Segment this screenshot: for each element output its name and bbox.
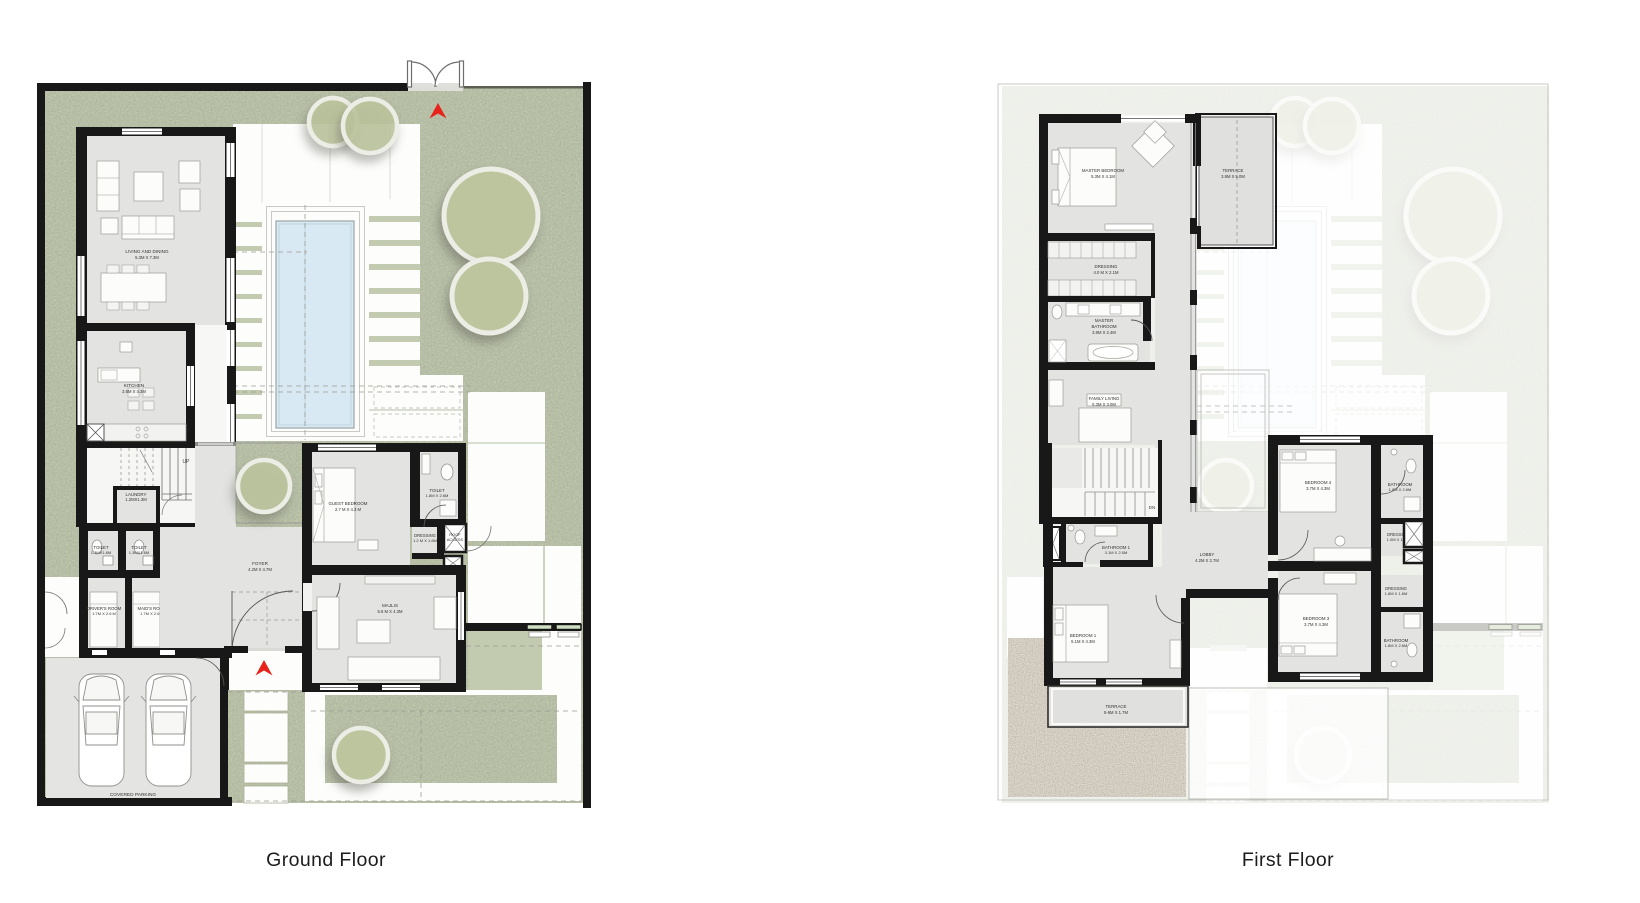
svg-text:4.0 M X 2.1M: 4.0 M X 2.1M — [1094, 270, 1119, 275]
svg-text:1.3MX1.6M: 1.3MX1.6M — [129, 550, 149, 555]
svg-text:4.2M X 2.7M: 4.2M X 2.7M — [1195, 558, 1219, 563]
svg-text:LOBBY: LOBBY — [1200, 552, 1215, 557]
svg-text:LIVING AND DINING: LIVING AND DINING — [125, 249, 169, 254]
svg-text:5.3M X 3.0M: 5.3M X 3.0M — [1092, 402, 1116, 407]
svg-text:1.2 M X 1.6M: 1.2 M X 1.6M — [413, 538, 437, 543]
svg-text:UP: UP — [183, 459, 191, 465]
svg-text:3.7M X 4.3M: 3.7M X 4.3M — [1304, 622, 1328, 627]
svg-text:MAJLIS: MAJLIS — [382, 603, 398, 608]
svg-text:4.2M X 4.7M: 4.2M X 4.7M — [248, 567, 272, 572]
svg-text:3.1M X 2.0M: 3.1M X 2.0M — [1105, 550, 1128, 555]
svg-text:1.3MX1.6M: 1.3MX1.6M — [91, 550, 111, 555]
svg-text:DRESSING: DRESSING — [1095, 264, 1119, 269]
svg-text:Ground Floor: Ground Floor — [266, 849, 386, 871]
svg-text:5.3M X 4.1M: 5.3M X 4.1M — [1091, 174, 1115, 179]
svg-text:5-6M X 1.7M: 5-6M X 1.7M — [1104, 710, 1128, 715]
svg-text:MASTER: MASTER — [1095, 318, 1113, 323]
svg-text:COVERED PARKING: COVERED PARKING — [110, 792, 157, 798]
svg-text:FAMILY LIVING: FAMILY LIVING — [1089, 396, 1120, 401]
svg-text:ACCESS: ACCESS — [447, 537, 464, 542]
svg-text:FOYER: FOYER — [252, 561, 269, 566]
svg-text:1.8M X 1.6M: 1.8M X 1.6M — [1385, 591, 1408, 596]
svg-text:GUEST BEDROOM: GUEST BEDROOM — [329, 501, 368, 506]
svg-text:MASTER BEDROOM: MASTER BEDROOM — [1082, 168, 1125, 173]
svg-text:3.8M X 2.4M: 3.8M X 2.4M — [1092, 330, 1116, 335]
svg-text:BEDROOM 1: BEDROOM 1 — [1070, 633, 1097, 638]
svg-text:1.8M X 2.6M: 1.8M X 2.6M — [1385, 643, 1408, 648]
svg-text:1.7M X 2.6 M: 1.7M X 2.6 M — [92, 611, 116, 616]
svg-text:TERRACE: TERRACE — [1223, 168, 1244, 173]
svg-text:BEDROOM 4: BEDROOM 4 — [1305, 480, 1332, 485]
svg-text:BATHROOM: BATHROOM — [1091, 324, 1116, 329]
svg-text:1.2MX1.3M: 1.2MX1.3M — [125, 497, 147, 502]
svg-text:3.7M X 4.3M: 3.7M X 4.3M — [1306, 486, 1330, 491]
svg-text:5.6 M X 4.3M: 5.6 M X 4.3M — [378, 609, 403, 614]
svg-text:5.1M X 4.3M: 5.1M X 4.3M — [1071, 639, 1095, 644]
svg-text:5.3M X 7.3M: 5.3M X 7.3M — [135, 255, 159, 260]
svg-text:1.8M X 2.6M: 1.8M X 2.6M — [426, 493, 449, 498]
svg-text:KITCHEN: KITCHEN — [124, 383, 144, 388]
svg-text:BEDROOM 3: BEDROOM 3 — [1303, 616, 1330, 621]
svg-text:TERRACE: TERRACE — [1106, 704, 1127, 709]
svg-text:2.7 M X 4.3 M: 2.7 M X 4.3 M — [335, 507, 362, 512]
svg-text:First Floor: First Floor — [1242, 849, 1334, 871]
svg-text:3.6M X 4.3M: 3.6M X 4.3M — [122, 389, 146, 394]
svg-text:DN: DN — [1149, 505, 1156, 510]
svg-text:3.9M X 5.0M: 3.9M X 5.0M — [1221, 174, 1245, 179]
